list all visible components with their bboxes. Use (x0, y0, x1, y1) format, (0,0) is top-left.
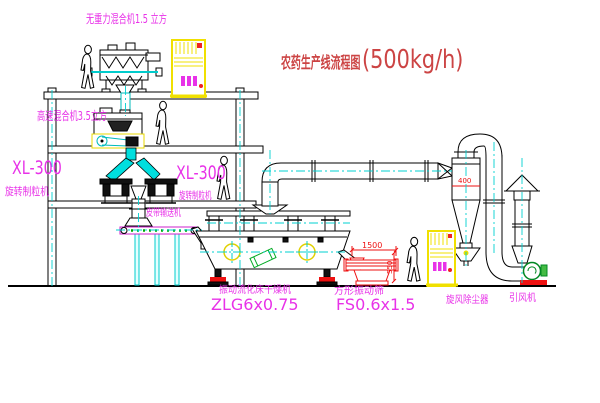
diagram-title-capacity: (500kg/h) (362, 47, 463, 73)
fan-base (520, 280, 547, 285)
dimension-cyclone-diameter: 400 (458, 178, 471, 185)
label-sieve-model: FS0.6x1.5 (336, 297, 415, 313)
diagram-title: 农药生产线流程图 (281, 55, 360, 71)
indicator-marks (433, 262, 447, 271)
label-granulator-right-model: XL-300 (176, 164, 226, 183)
label-mid-mixer: 高速混合机3.5立方 (37, 110, 107, 122)
label-granulator-left-model: XL-300 (12, 159, 62, 178)
worker-figure-2 (156, 101, 169, 144)
dimension-sieve-length: 1500 (362, 242, 382, 250)
fluid-bed-dryer (196, 211, 360, 285)
indicator-marks (181, 76, 197, 86)
floor-slab-1 (44, 92, 258, 99)
conveyor-leg (135, 234, 139, 285)
granulator-right (145, 179, 177, 203)
exhaust-riser-duct (253, 160, 452, 214)
label-granulator-left-name: 旋转制粒机 (5, 186, 49, 197)
control-cabinet-lower (426, 231, 458, 286)
dimension-sieve-height: 550 (387, 261, 394, 274)
indicator-dot (448, 268, 452, 272)
control-cabinet-upper (170, 40, 207, 97)
indicator-dot (199, 84, 203, 88)
label-belt-conveyor: 皮带输送机 (146, 209, 181, 219)
indicator-lamp (448, 234, 452, 238)
induced-draft-fan (520, 263, 547, 286)
spring-support (208, 269, 228, 285)
floor-slab-3 (48, 201, 256, 208)
indicator-lamp (197, 43, 202, 48)
label-granulator-right-name: 旋转制粒机 (179, 192, 212, 202)
conveyor-leg (175, 234, 179, 285)
label-gravity-mixer: 无重力混合机1.5 立方 (86, 13, 167, 25)
worker-figure-1 (81, 45, 94, 88)
worker-figure-4 (407, 237, 420, 281)
hood-connectors (205, 216, 339, 231)
label-fan-name: 引风机 (509, 294, 536, 304)
spring-support (317, 269, 337, 285)
label-cyclone-name: 旋风除尘器 (446, 296, 489, 306)
granulator-left (100, 179, 132, 203)
label-dryer-model: ZLG6x0.75 (211, 297, 299, 313)
conveyor-leg (155, 234, 159, 285)
fan-motor (541, 265, 547, 276)
gravity-free-mixer (86, 43, 162, 114)
floor-slab-2 (48, 146, 263, 153)
process-flow-diagram: 农药生产线流程图 (500kg/h) 无重力混合机1.5 立方 高速混合机3.5… (0, 0, 600, 403)
